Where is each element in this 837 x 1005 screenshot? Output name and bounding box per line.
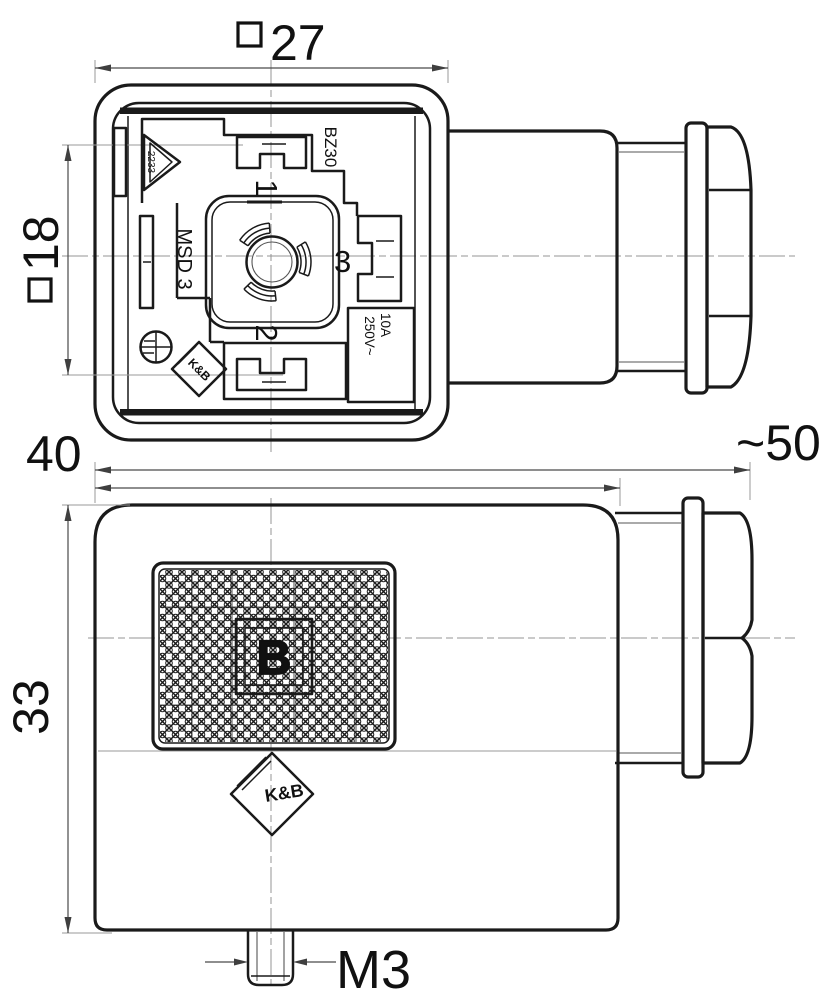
ground-symbol: [141, 332, 172, 363]
series-label: MSD 3: [173, 228, 195, 289]
knurl-pad: B: [153, 563, 395, 749]
side-view: B K&B: [95, 498, 752, 985]
front-view: 2233: [62, 85, 751, 440]
svg-text:27: 27: [270, 15, 326, 71]
triangle-label: 2233: [145, 151, 156, 174]
rating-voltage-label: 250V~: [362, 316, 377, 356]
face-cutouts: [114, 119, 414, 402]
pin-2-label: 2: [249, 324, 284, 341]
side-slot: [140, 216, 153, 308]
dimension-body-height-label: 33: [3, 679, 59, 735]
dimension-screw-thread-label: M3: [336, 940, 411, 1000]
rating-current-label: 10A: [378, 313, 393, 337]
size-letter: B: [257, 632, 292, 685]
pin-3-label: 3: [334, 244, 351, 279]
face-top-bar: [120, 108, 423, 115]
dimension-body-height: 33: [3, 505, 130, 933]
screw-wings: [240, 223, 311, 301]
approval-triangle: 2233: [144, 135, 180, 190]
technical-drawing-page: 2233: [0, 0, 837, 1000]
face-bottom-bar: [120, 409, 423, 416]
dimension-screw-thread: M3: [205, 940, 411, 1000]
svg-text:18: 18: [13, 215, 69, 271]
central-socket: [206, 196, 339, 328]
contact-3: [358, 216, 401, 301]
dimension-overall-length-label: ~50: [736, 415, 821, 471]
kb-logo-front-text: K&B: [185, 356, 214, 385]
dimension-overall-length: ~50: [95, 415, 821, 503]
type-code-label: BZ30: [321, 127, 340, 168]
connector-drawing: 2233: [0, 0, 837, 1000]
keyway-slot: [114, 128, 126, 196]
pin-1-label: 1: [249, 179, 284, 196]
kb-logo-side: K&B: [231, 753, 313, 835]
dimension-face-width-label: 27: [238, 15, 326, 71]
front-view-cable-gland: [448, 123, 751, 393]
dimension-insert-width-label: 18: [13, 215, 69, 301]
kb-logo-side-text: K&B: [263, 780, 305, 806]
dimension-insert-width: 18: [13, 145, 72, 375]
kb-logo-front: K&B: [172, 342, 226, 396]
dimension-body-depth-label: 40: [26, 426, 82, 482]
